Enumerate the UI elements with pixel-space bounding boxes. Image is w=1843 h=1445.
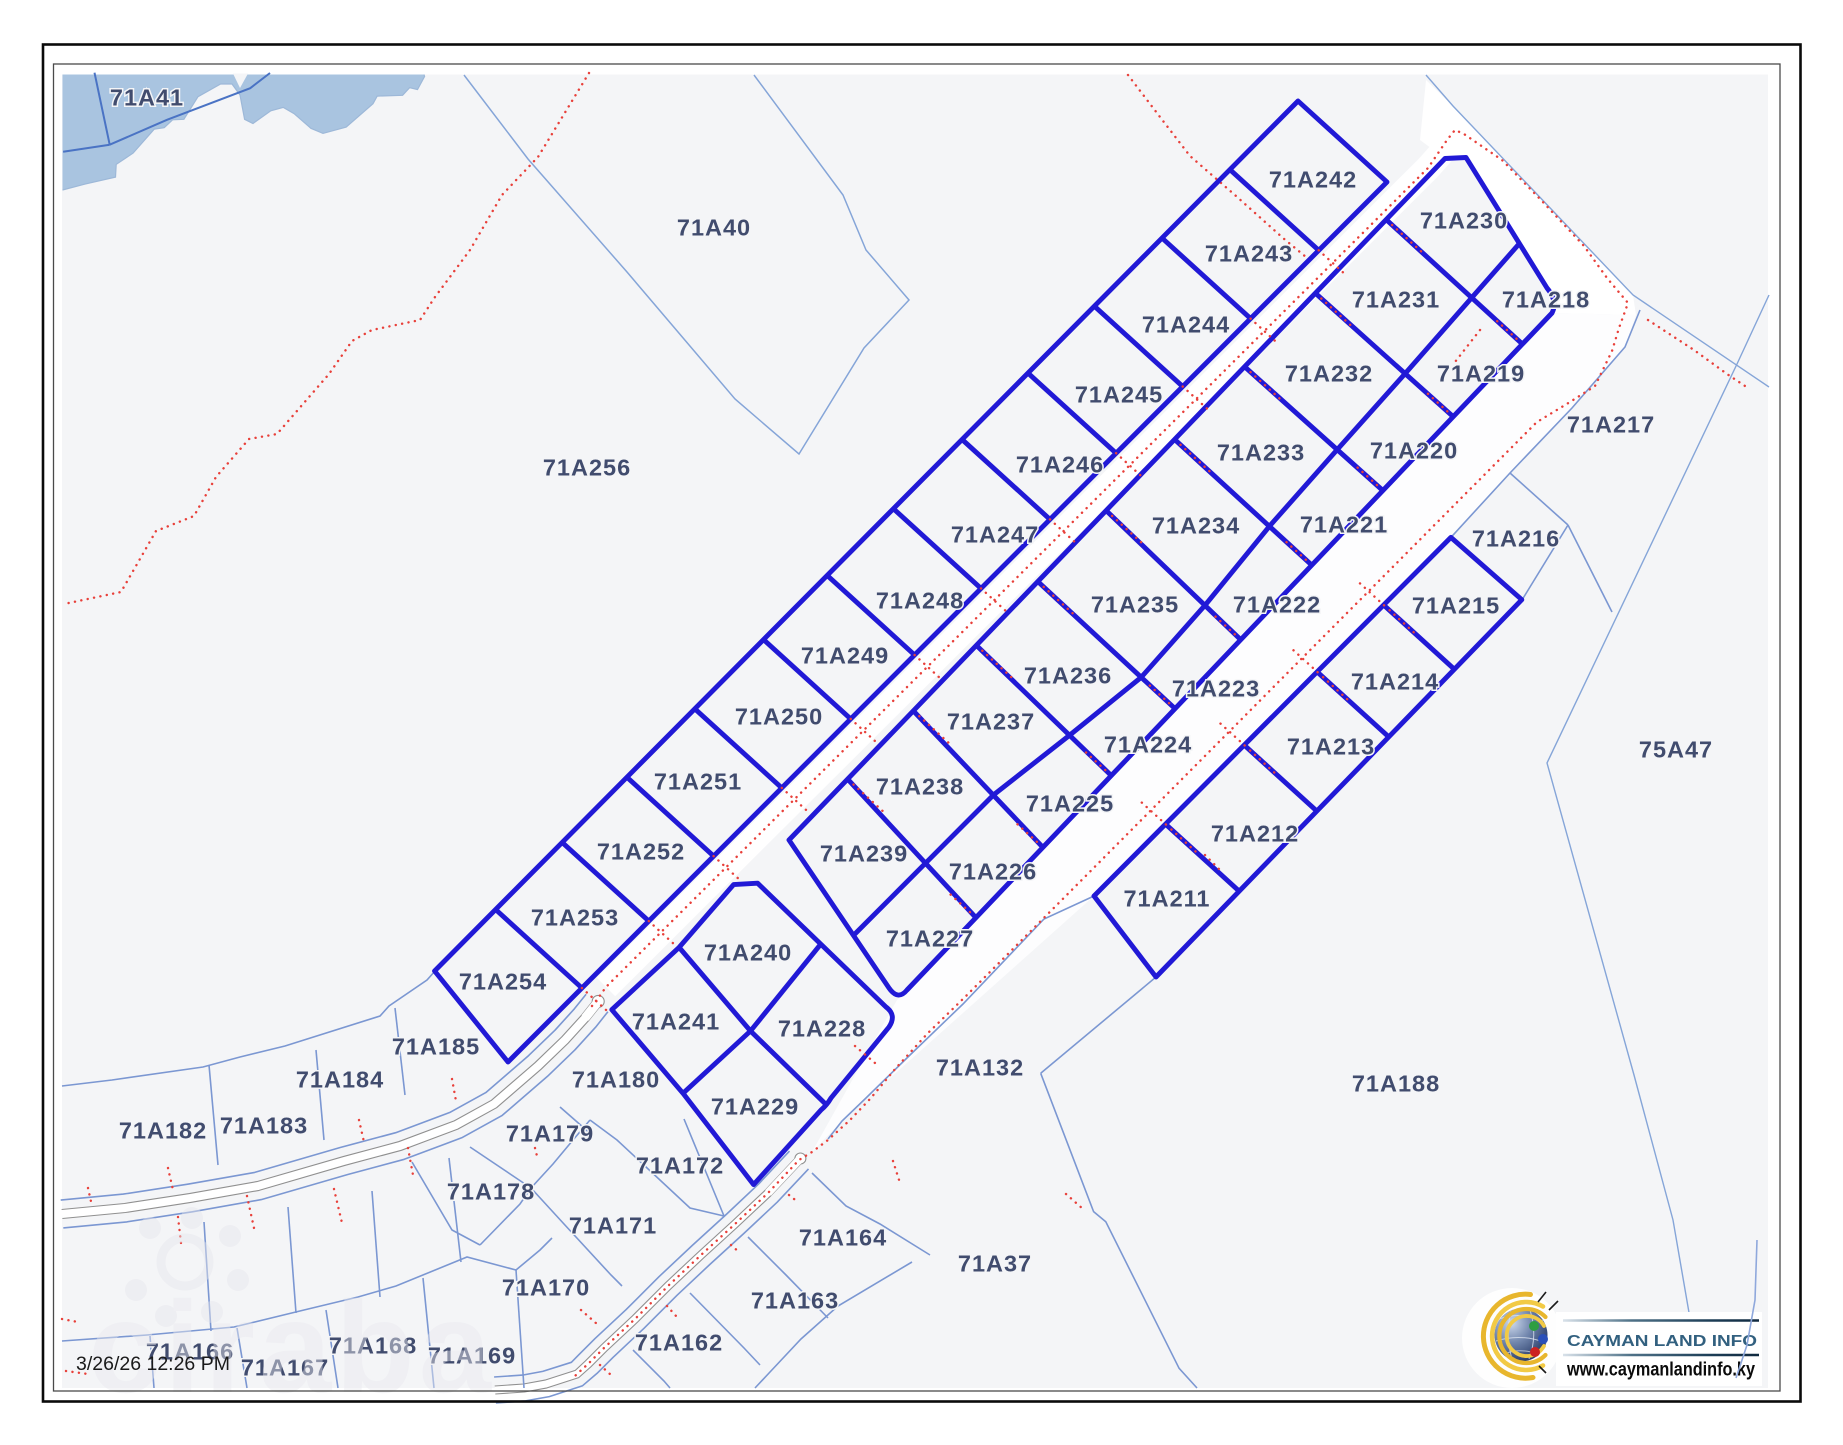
svg-text:71A132: 71A132 [936, 1055, 1024, 1081]
svg-text:71A225: 71A225 [1026, 791, 1114, 817]
svg-text:71A230: 71A230 [1420, 208, 1508, 234]
svg-text:71A247: 71A247 [951, 522, 1039, 548]
svg-text:71A172: 71A172 [636, 1153, 724, 1179]
svg-text:71A231: 71A231 [1352, 287, 1440, 313]
svg-text:71A239: 71A239 [820, 841, 908, 867]
svg-text:71A212: 71A212 [1211, 821, 1299, 847]
svg-text:71A213: 71A213 [1287, 734, 1375, 760]
svg-text:71A185: 71A185 [392, 1034, 480, 1060]
svg-text:71A219: 71A219 [1437, 361, 1525, 387]
svg-text:71A248: 71A248 [876, 588, 964, 614]
svg-text:71A40: 71A40 [677, 215, 751, 241]
svg-text:71A41: 71A41 [110, 85, 184, 111]
svg-text:71A220: 71A220 [1370, 438, 1458, 464]
svg-text:71A162: 71A162 [635, 1330, 723, 1356]
svg-text:71A188: 71A188 [1352, 1071, 1440, 1097]
svg-text:71A179: 71A179 [506, 1121, 594, 1147]
svg-text:71A242: 71A242 [1269, 167, 1357, 193]
svg-text:71A164: 71A164 [799, 1225, 887, 1251]
svg-text:71A253: 71A253 [531, 905, 619, 931]
svg-text:71A180: 71A180 [572, 1067, 660, 1093]
svg-text:71A240: 71A240 [704, 940, 792, 966]
svg-text:ciraba: ciraba [88, 1274, 495, 1420]
svg-text:71A254: 71A254 [459, 969, 547, 995]
svg-text:71A232: 71A232 [1285, 361, 1373, 387]
svg-text:71A211: 71A211 [1123, 886, 1210, 912]
svg-text:71A182: 71A182 [119, 1118, 207, 1144]
svg-text:71A229: 71A229 [711, 1094, 799, 1120]
svg-text:71A178: 71A178 [447, 1179, 535, 1205]
svg-text:71A246: 71A246 [1016, 452, 1104, 478]
svg-text:71A237: 71A237 [947, 709, 1035, 735]
svg-text:www.caymanlandinfo.ky: www.caymanlandinfo.ky [1566, 1360, 1755, 1381]
svg-text:71A217: 71A217 [1567, 412, 1655, 438]
svg-text:71A171: 71A171 [569, 1213, 657, 1239]
svg-text:75A47: 75A47 [1639, 737, 1713, 763]
svg-text:CAYMAN LAND INFO: CAYMAN LAND INFO [1567, 1333, 1757, 1350]
svg-text:71A235: 71A235 [1091, 592, 1179, 618]
svg-text:71A250: 71A250 [735, 704, 823, 730]
svg-text:71A226: 71A226 [949, 859, 1037, 885]
svg-text:71A227: 71A227 [886, 926, 974, 952]
svg-text:71A184: 71A184 [296, 1067, 384, 1093]
svg-text:71A251: 71A251 [654, 769, 742, 795]
svg-text:71A221: 71A221 [1300, 512, 1388, 538]
svg-text:71A218: 71A218 [1502, 287, 1590, 313]
svg-text:71A215: 71A215 [1412, 593, 1500, 619]
svg-text:71A170: 71A170 [502, 1275, 590, 1301]
svg-text:71A183: 71A183 [220, 1113, 308, 1139]
svg-text:71A245: 71A245 [1075, 382, 1163, 408]
svg-text:71A243: 71A243 [1205, 241, 1293, 267]
svg-text:71A222: 71A222 [1233, 592, 1321, 618]
svg-text:71A37: 71A37 [958, 1251, 1032, 1277]
svg-text:71A252: 71A252 [597, 839, 685, 865]
svg-text:71A234: 71A234 [1152, 513, 1240, 539]
svg-text:3/26/26 12:26 PM: 3/26/26 12:26 PM [76, 1353, 230, 1375]
svg-text:71A224: 71A224 [1104, 732, 1192, 758]
svg-text:71A228: 71A228 [778, 1016, 866, 1042]
svg-text:71A216: 71A216 [1472, 526, 1560, 552]
svg-text:71A233: 71A233 [1217, 440, 1305, 466]
svg-text:71A256: 71A256 [543, 455, 631, 481]
svg-text:71A244: 71A244 [1142, 312, 1230, 338]
svg-text:71A214: 71A214 [1351, 669, 1439, 695]
svg-text:71A238: 71A238 [876, 774, 964, 800]
svg-text:71A236: 71A236 [1024, 663, 1112, 689]
svg-text:71A223: 71A223 [1172, 676, 1260, 702]
svg-text:71A163: 71A163 [751, 1288, 839, 1314]
svg-text:71A241: 71A241 [632, 1009, 720, 1035]
svg-text:71A249: 71A249 [801, 643, 889, 669]
